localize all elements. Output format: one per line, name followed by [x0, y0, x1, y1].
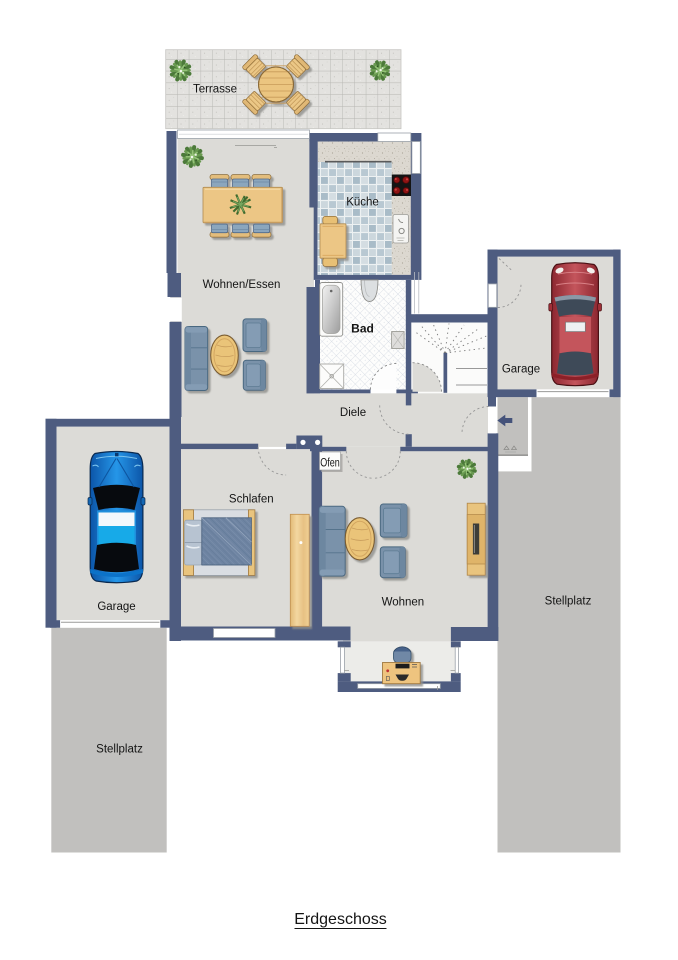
svg-text:Garage: Garage [97, 601, 135, 613]
svg-text:Schlafen: Schlafen [229, 494, 274, 506]
svg-text:Diele: Diele [340, 407, 366, 419]
svg-text:Ofen: Ofen [320, 458, 340, 470]
svg-text:Stellplatz: Stellplatz [96, 744, 143, 756]
svg-text:Wohnen/Essen: Wohnen/Essen [203, 279, 281, 291]
svg-text:Bad: Bad [351, 322, 374, 336]
svg-text:Stellplatz: Stellplatz [545, 596, 592, 608]
svg-text:Erdgeschoss: Erdgeschoss [294, 911, 387, 928]
svg-text:Terrasse: Terrasse [193, 84, 237, 96]
svg-text:Wohnen: Wohnen [382, 597, 425, 609]
svg-text:Garage: Garage [502, 364, 540, 376]
svg-text:Küche: Küche [346, 197, 379, 209]
